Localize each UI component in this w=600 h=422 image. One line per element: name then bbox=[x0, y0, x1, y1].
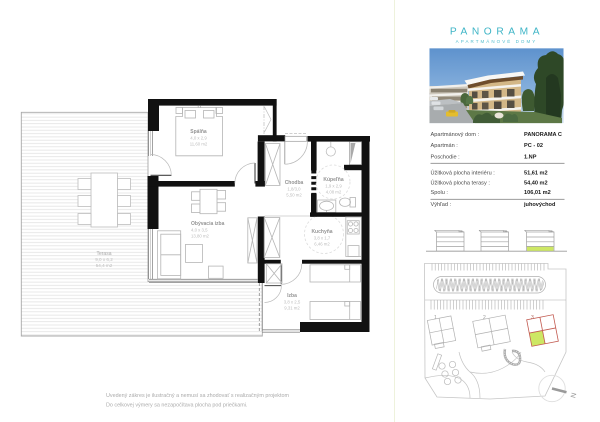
svg-text:1,9 x 2,9: 1,9 x 2,9 bbox=[325, 184, 342, 189]
svg-text:APARTMÁNOVÉ DOMY: APARTMÁNOVÉ DOMY bbox=[456, 38, 538, 44]
svg-text:9,31 m2: 9,31 m2 bbox=[284, 306, 300, 311]
svg-text:Do celkovej výmery sa nezapočí: Do celkovej výmery sa nezapočítava ploch… bbox=[106, 403, 247, 409]
svg-text:13,80 m2: 13,80 m2 bbox=[191, 234, 210, 239]
svg-text:3: 3 bbox=[531, 315, 534, 321]
svg-text:51,61 m2: 51,61 m2 bbox=[524, 171, 548, 177]
svg-text:1,8/3,0: 1,8/3,0 bbox=[287, 187, 301, 192]
svg-text:PANORAMA C: PANORAMA C bbox=[524, 132, 562, 138]
svg-text:Úžitková plocha interiéru :: Úžitková plocha interiéru : bbox=[431, 170, 496, 177]
svg-text:Kuchyňa: Kuchyňa bbox=[311, 229, 332, 235]
svg-text:54,40 m2: 54,40 m2 bbox=[524, 180, 548, 186]
svg-text:Poschodie :: Poschodie : bbox=[431, 154, 461, 160]
svg-text:juhovýchod: juhovýchod bbox=[523, 202, 556, 208]
svg-text:4,0 x 2,9: 4,0 x 2,9 bbox=[190, 136, 207, 141]
svg-text:9,0 x 6,2: 9,0 x 6,2 bbox=[95, 257, 113, 262]
svg-text:1.NP: 1.NP bbox=[524, 154, 537, 160]
svg-text:Úžitková plocha terasy :: Úžitková plocha terasy : bbox=[431, 179, 491, 186]
svg-text:3,8 x 2,5: 3,8 x 2,5 bbox=[284, 300, 301, 305]
svg-text:6,46 m2: 6,46 m2 bbox=[314, 242, 330, 247]
svg-text:2: 2 bbox=[483, 315, 486, 321]
svg-text:Výhľad :: Výhľad : bbox=[431, 202, 452, 208]
svg-text:Chodba: Chodba bbox=[285, 180, 304, 186]
svg-text:PANORAMA: PANORAMA bbox=[450, 27, 544, 38]
svg-text:Obývacia izba: Obývacia izba bbox=[191, 221, 225, 227]
svg-text:Apartmánový dom :: Apartmánový dom : bbox=[431, 132, 480, 138]
svg-text:54,4 m2: 54,4 m2 bbox=[96, 263, 113, 268]
svg-text:4,0 x 3,5: 4,0 x 3,5 bbox=[191, 228, 208, 233]
svg-text:4,08 m2: 4,08 m2 bbox=[326, 190, 342, 195]
svg-text:Izba: Izba bbox=[287, 293, 297, 299]
svg-text:Uvedený zákres je ilustračný a: Uvedený zákres je ilustračný a nemusí sa… bbox=[106, 393, 289, 399]
svg-text:11,60 m2: 11,60 m2 bbox=[190, 142, 208, 147]
svg-text:3,8 x 1,7: 3,8 x 1,7 bbox=[314, 236, 331, 241]
svg-text:Spolu :: Spolu : bbox=[431, 190, 449, 196]
svg-text:Spálňa: Spálňa bbox=[190, 129, 207, 135]
svg-text:5,50 m2: 5,50 m2 bbox=[286, 193, 302, 198]
svg-text:PC - 02: PC - 02 bbox=[524, 143, 543, 149]
svg-text:N: N bbox=[569, 392, 577, 399]
svg-text:106,01 m2: 106,01 m2 bbox=[524, 190, 551, 196]
svg-text:Kúpeľňa: Kúpeľňa bbox=[323, 177, 343, 183]
svg-text:1: 1 bbox=[434, 315, 437, 321]
svg-text:Apartmán :: Apartmán : bbox=[431, 143, 459, 149]
